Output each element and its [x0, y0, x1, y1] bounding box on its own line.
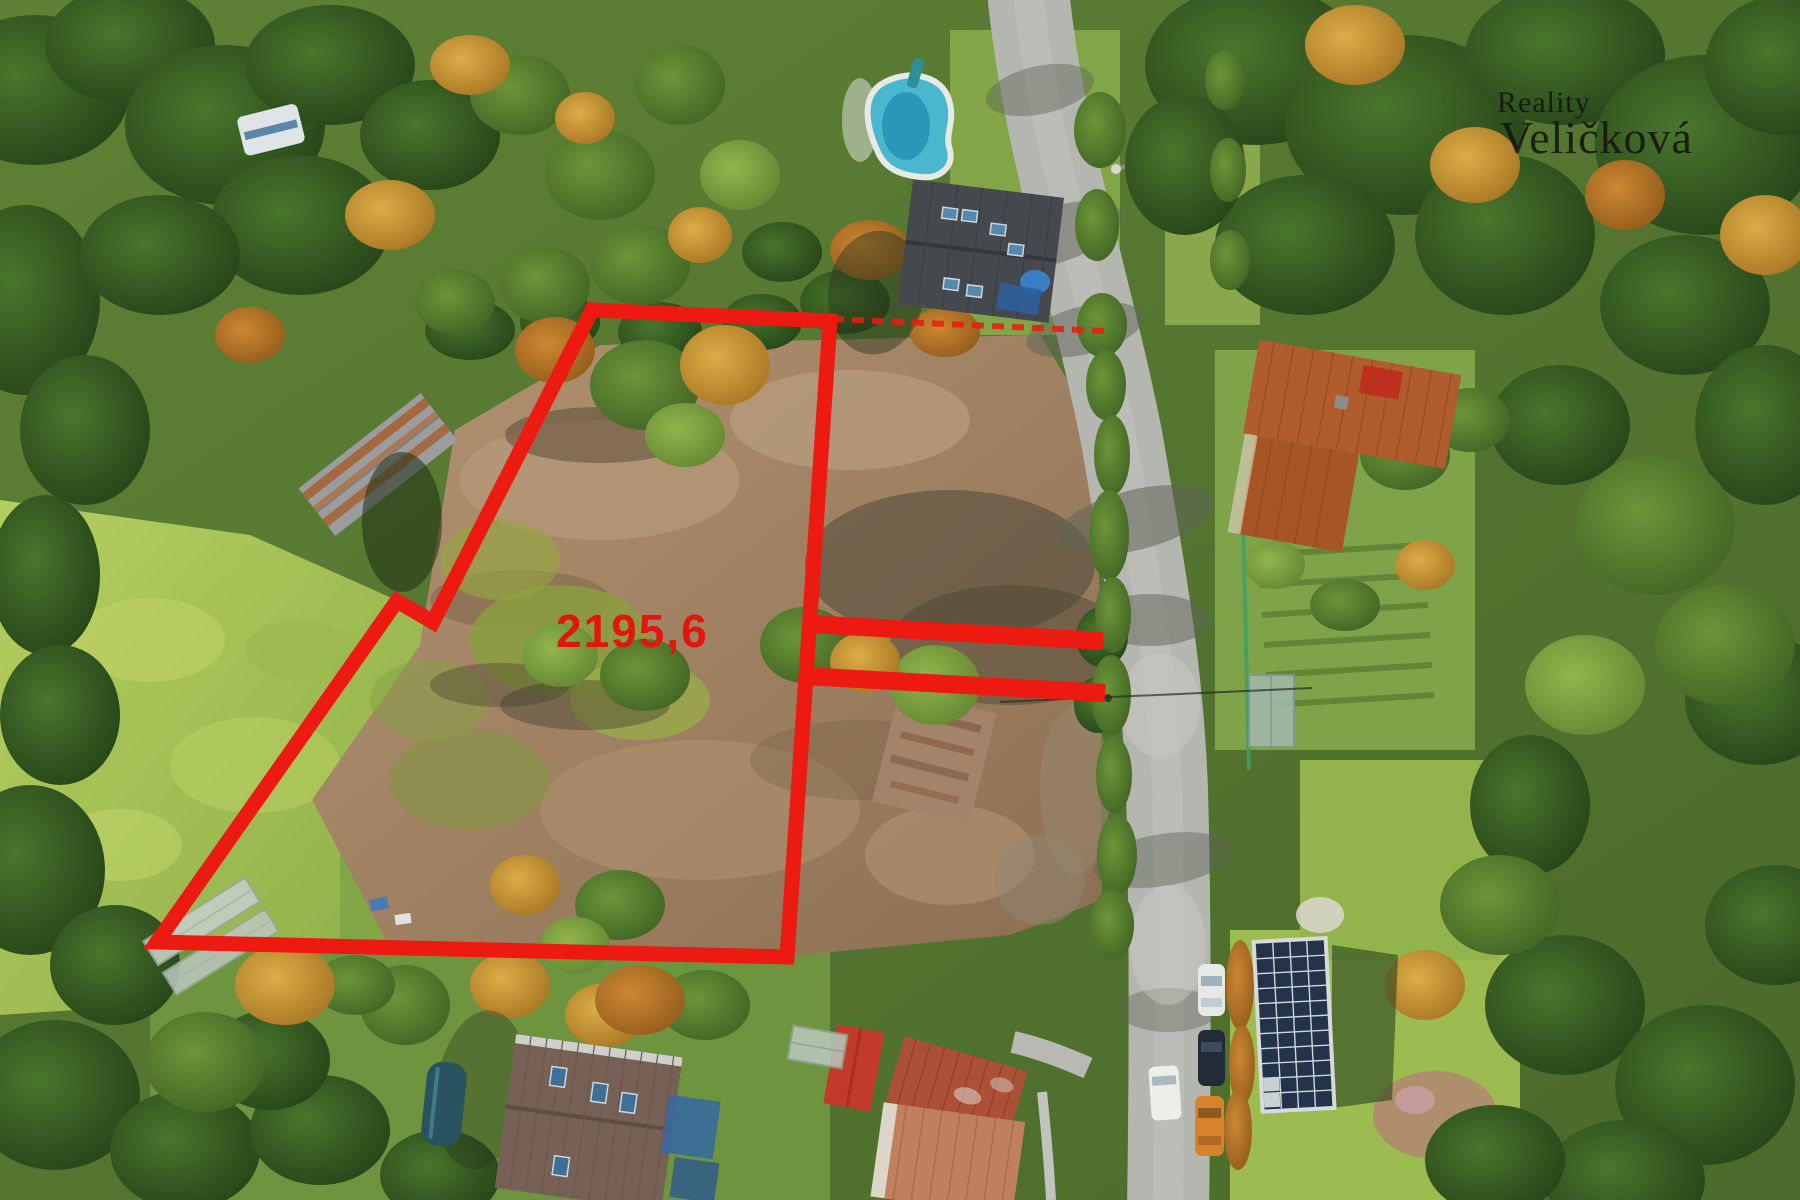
blue-tarp: [661, 1095, 721, 1160]
aerial-photo: 2195,6 Reality Veličková: [0, 0, 1800, 1200]
area-label: 2195,6: [556, 605, 709, 657]
solar-shadow: [1332, 945, 1398, 1108]
van-white: [1148, 1065, 1182, 1121]
aerial-photo-canvas: 2195,6 Reality Veličková: [0, 0, 1800, 1200]
car-dark: [1198, 1030, 1225, 1086]
roadside-greenhouse: [1249, 675, 1294, 747]
chimney: [1334, 395, 1349, 410]
solar-panel-array: [1252, 936, 1398, 1114]
garden-white-structure: [1296, 897, 1344, 933]
watermark-line2: Veličková: [1500, 112, 1693, 163]
car-white: [1198, 964, 1225, 1016]
car-orange: [1195, 1096, 1224, 1156]
blue-tarp: [669, 1157, 719, 1200]
